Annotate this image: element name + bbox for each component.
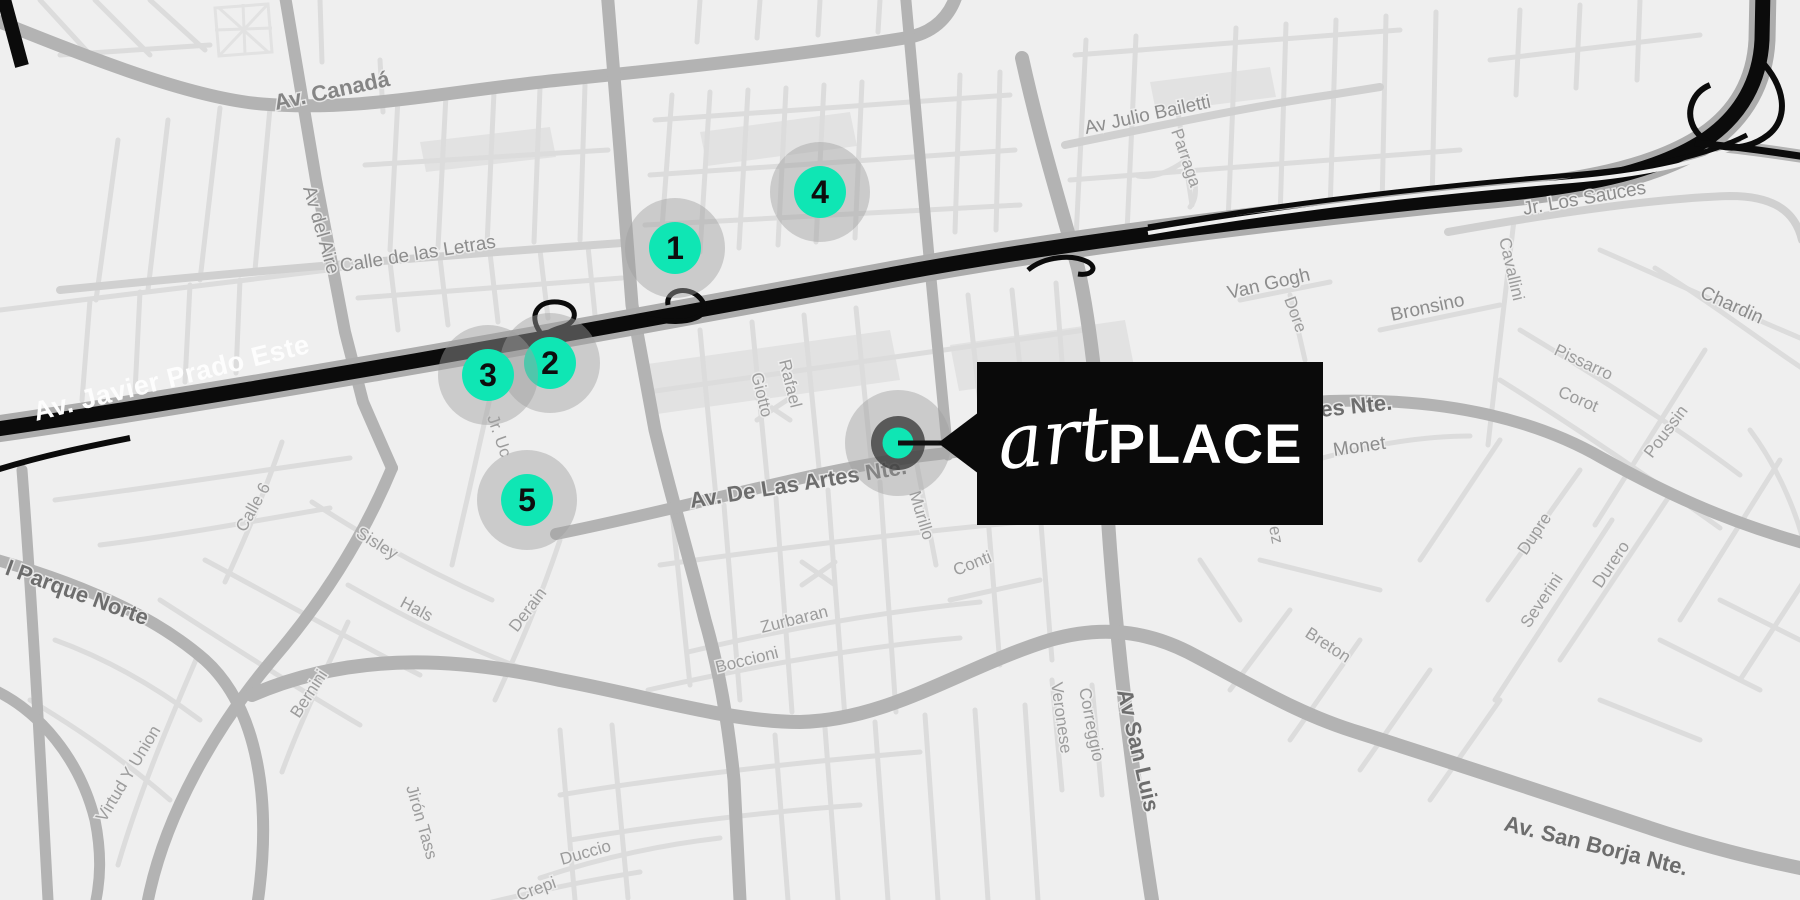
street-label: Correggio bbox=[1075, 686, 1108, 763]
map-marker-5[interactable]: 5 bbox=[477, 450, 577, 550]
marker-number: 5 bbox=[518, 482, 536, 518]
street-label: Pissarro bbox=[1551, 340, 1616, 384]
street-label: Conti bbox=[950, 547, 994, 579]
marker-number: 3 bbox=[479, 357, 497, 393]
street-label: Virtud Y Union bbox=[92, 722, 164, 825]
map-canvas[interactable]: Av. CanadáAv del AireCalle de las Letras… bbox=[0, 0, 1800, 900]
street-label: Av. San Borja Nte. bbox=[1502, 811, 1691, 881]
street-label: Calle de las Letras bbox=[338, 232, 497, 277]
artplace-callout[interactable]: art PLACE bbox=[977, 362, 1323, 525]
street-label: Breton bbox=[1302, 623, 1354, 666]
map[interactable]: Av. CanadáAv del AireCalle de las Letras… bbox=[0, 0, 1800, 900]
street-label: Sisley bbox=[353, 523, 402, 563]
street-label: l Parque Norte bbox=[2, 555, 152, 630]
brand-place-label: PLACE bbox=[1108, 416, 1303, 472]
street-label: es Nte. bbox=[1319, 390, 1393, 422]
map-marker-4[interactable]: 4 bbox=[770, 142, 870, 242]
street-label: Cavallini bbox=[1495, 236, 1528, 303]
marker-number: 1 bbox=[666, 230, 684, 266]
street-label: Veronese bbox=[1047, 681, 1076, 755]
street-label: Crepi bbox=[514, 873, 559, 900]
street-label: Av del Aire bbox=[298, 184, 343, 277]
brand-art-script: art bbox=[994, 395, 1112, 480]
map-marker-3[interactable]: 3 bbox=[438, 325, 538, 425]
map-marker-1[interactable]: 1 bbox=[625, 198, 725, 298]
marker-number: 2 bbox=[541, 345, 559, 381]
street-label: Corot bbox=[1555, 382, 1601, 416]
street-label: Dore bbox=[1280, 294, 1310, 335]
street-label: Dupre bbox=[1514, 509, 1556, 558]
park-paths bbox=[215, 4, 272, 56]
street-label: ez bbox=[1265, 524, 1287, 545]
street-label: Av San Luis bbox=[1112, 687, 1165, 815]
street-label: Parraga bbox=[1167, 126, 1205, 190]
street-label: Jirón Tass bbox=[402, 783, 441, 862]
marker-number: 4 bbox=[811, 174, 829, 210]
street-label: Boccioni bbox=[713, 643, 780, 677]
street-label: Calle 6 bbox=[232, 479, 274, 534]
street-label: Monet bbox=[1332, 433, 1388, 461]
